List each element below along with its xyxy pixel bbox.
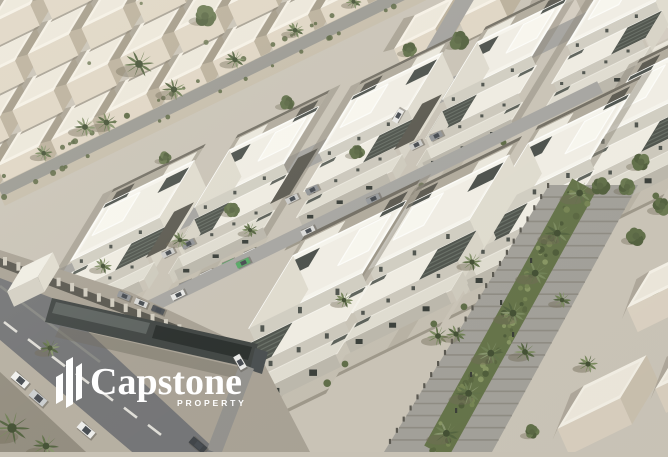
- svg-text:Capstone: Capstone: [90, 361, 242, 403]
- svg-text:PROPERTY: PROPERTY: [177, 398, 247, 408]
